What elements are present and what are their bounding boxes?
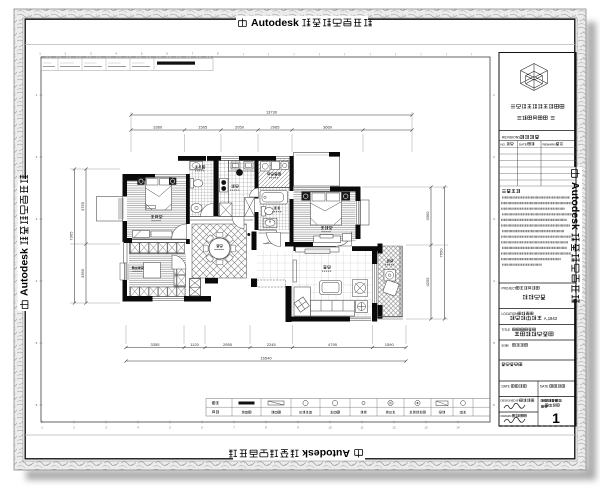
svg-text:10: 10	[328, 426, 332, 430]
svg-text:LOCATION: LOCATION	[502, 312, 519, 316]
svg-text:DESIGNED BY: DESIGNED BY	[501, 399, 521, 403]
svg-text:2245: 2245	[267, 342, 277, 347]
svg-text:NO.: NO.	[501, 142, 507, 146]
svg-text:16540: 16540	[260, 355, 272, 360]
svg-text:Autodesk: Autodesk	[251, 17, 299, 29]
svg-text:Autodesk: Autodesk	[19, 248, 31, 296]
svg-text:13730: 13730	[266, 109, 278, 114]
svg-text:DATE: DATE	[540, 385, 548, 389]
svg-text:A,1943: A,1943	[544, 316, 558, 321]
svg-text:1: 1	[552, 410, 560, 426]
svg-text:7650: 7650	[439, 248, 444, 258]
svg-text:1505: 1505	[198, 124, 208, 129]
svg-text:11: 11	[361, 426, 364, 430]
svg-text:TITLE: TITLE	[502, 328, 511, 332]
svg-text:12: 12	[392, 426, 396, 430]
svg-text:1590: 1590	[385, 342, 395, 347]
svg-text:scale: scale	[502, 344, 510, 348]
svg-text:DRAWN: DRAWN	[501, 414, 512, 418]
svg-text:4255: 4255	[425, 277, 430, 287]
svg-text:13: 13	[424, 426, 428, 430]
svg-text:3360: 3360	[153, 124, 163, 129]
svg-text:3360: 3360	[425, 211, 430, 221]
svg-text:Autodesk: Autodesk	[302, 447, 350, 459]
svg-text:3360: 3360	[80, 268, 85, 278]
svg-text:2955: 2955	[223, 342, 233, 347]
svg-text:REVISIONS: REVISIONS	[502, 136, 521, 140]
svg-text:2065: 2065	[271, 124, 281, 129]
svg-text:PROJECT: PROJECT	[502, 287, 517, 291]
svg-text:3355: 3355	[151, 342, 161, 347]
svg-text:3755: 3755	[80, 201, 85, 211]
svg-text:1120: 1120	[190, 342, 199, 347]
svg-text:2050: 2050	[235, 124, 245, 129]
svg-text:7365: 7365	[69, 231, 74, 241]
svg-text:DATE: DATE	[502, 385, 510, 389]
svg-text:Autodesk: Autodesk	[569, 182, 581, 230]
svg-text:3660: 3660	[323, 124, 333, 129]
svg-text:4795: 4795	[328, 342, 338, 347]
svg-text:DATE: DATE	[519, 142, 527, 146]
svg-text:REMARKS: REMARKS	[543, 142, 558, 146]
svg-text:14: 14	[456, 426, 460, 430]
